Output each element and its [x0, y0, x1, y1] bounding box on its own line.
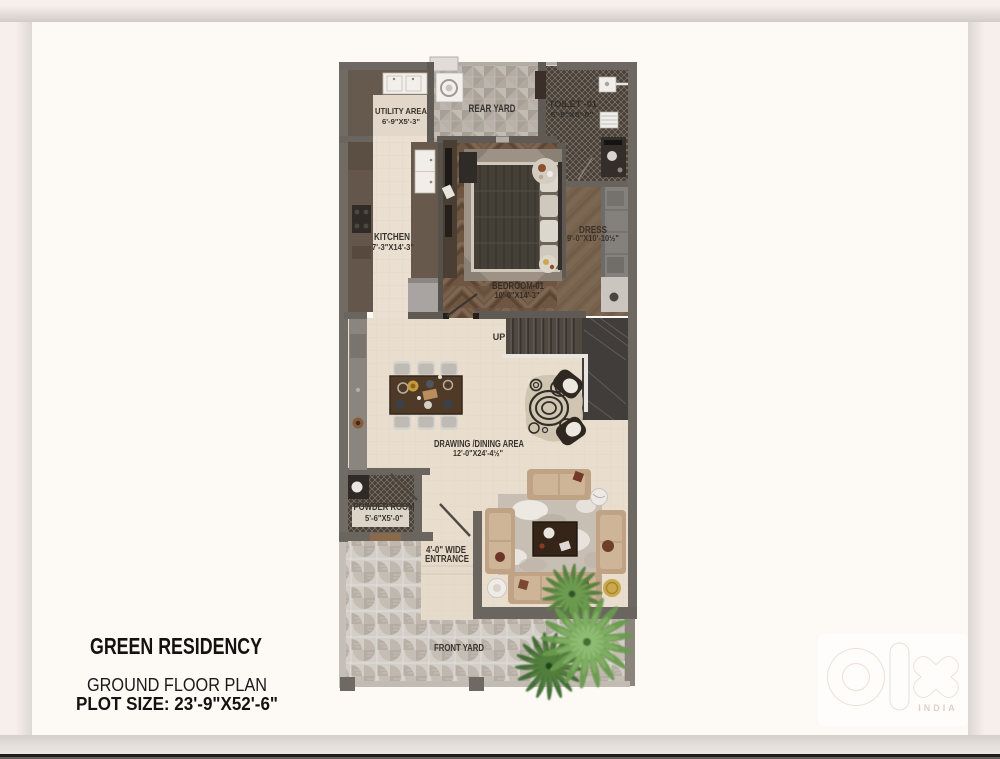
svg-text:12'-0"X24'-4½": 12'-0"X24'-4½" — [453, 448, 503, 458]
svg-text:6'-9"X8'-0": 6'-9"X8'-0" — [551, 110, 594, 119]
svg-text:GREEN RESIDENCY: GREEN RESIDENCY — [90, 633, 262, 659]
svg-text:INDIA: INDIA — [918, 703, 958, 713]
svg-text:9'-0"X10'-10½": 9'-0"X10'-10½" — [567, 233, 619, 243]
svg-text:UTILITY AREA: UTILITY AREA — [375, 106, 427, 116]
svg-text:TOILET -01: TOILET -01 — [549, 99, 597, 109]
svg-text:ENTRANCE: ENTRANCE — [425, 554, 469, 565]
svg-text:FRONT YARD: FRONT YARD — [434, 642, 484, 654]
svg-text:6'-9"X5'-3": 6'-9"X5'-3" — [382, 117, 420, 126]
svg-text:REAR YARD: REAR YARD — [469, 103, 516, 115]
svg-text:UP: UP — [493, 332, 506, 342]
svg-text:5'-6"X5'-0": 5'-6"X5'-0" — [365, 513, 403, 523]
svg-text:PLOT SIZE: 23'-9"X52'-6": PLOT SIZE: 23'-9"X52'-6" — [76, 693, 278, 714]
svg-text:POWDER ROOM: POWDER ROOM — [354, 502, 415, 513]
svg-text:GROUND FLOOR PLAN: GROUND FLOOR PLAN — [87, 674, 267, 695]
svg-text:10'-0"X14'-3": 10'-0"X14'-3" — [495, 290, 540, 300]
svg-text:7'-3"X14'-3": 7'-3"X14'-3" — [372, 242, 414, 252]
